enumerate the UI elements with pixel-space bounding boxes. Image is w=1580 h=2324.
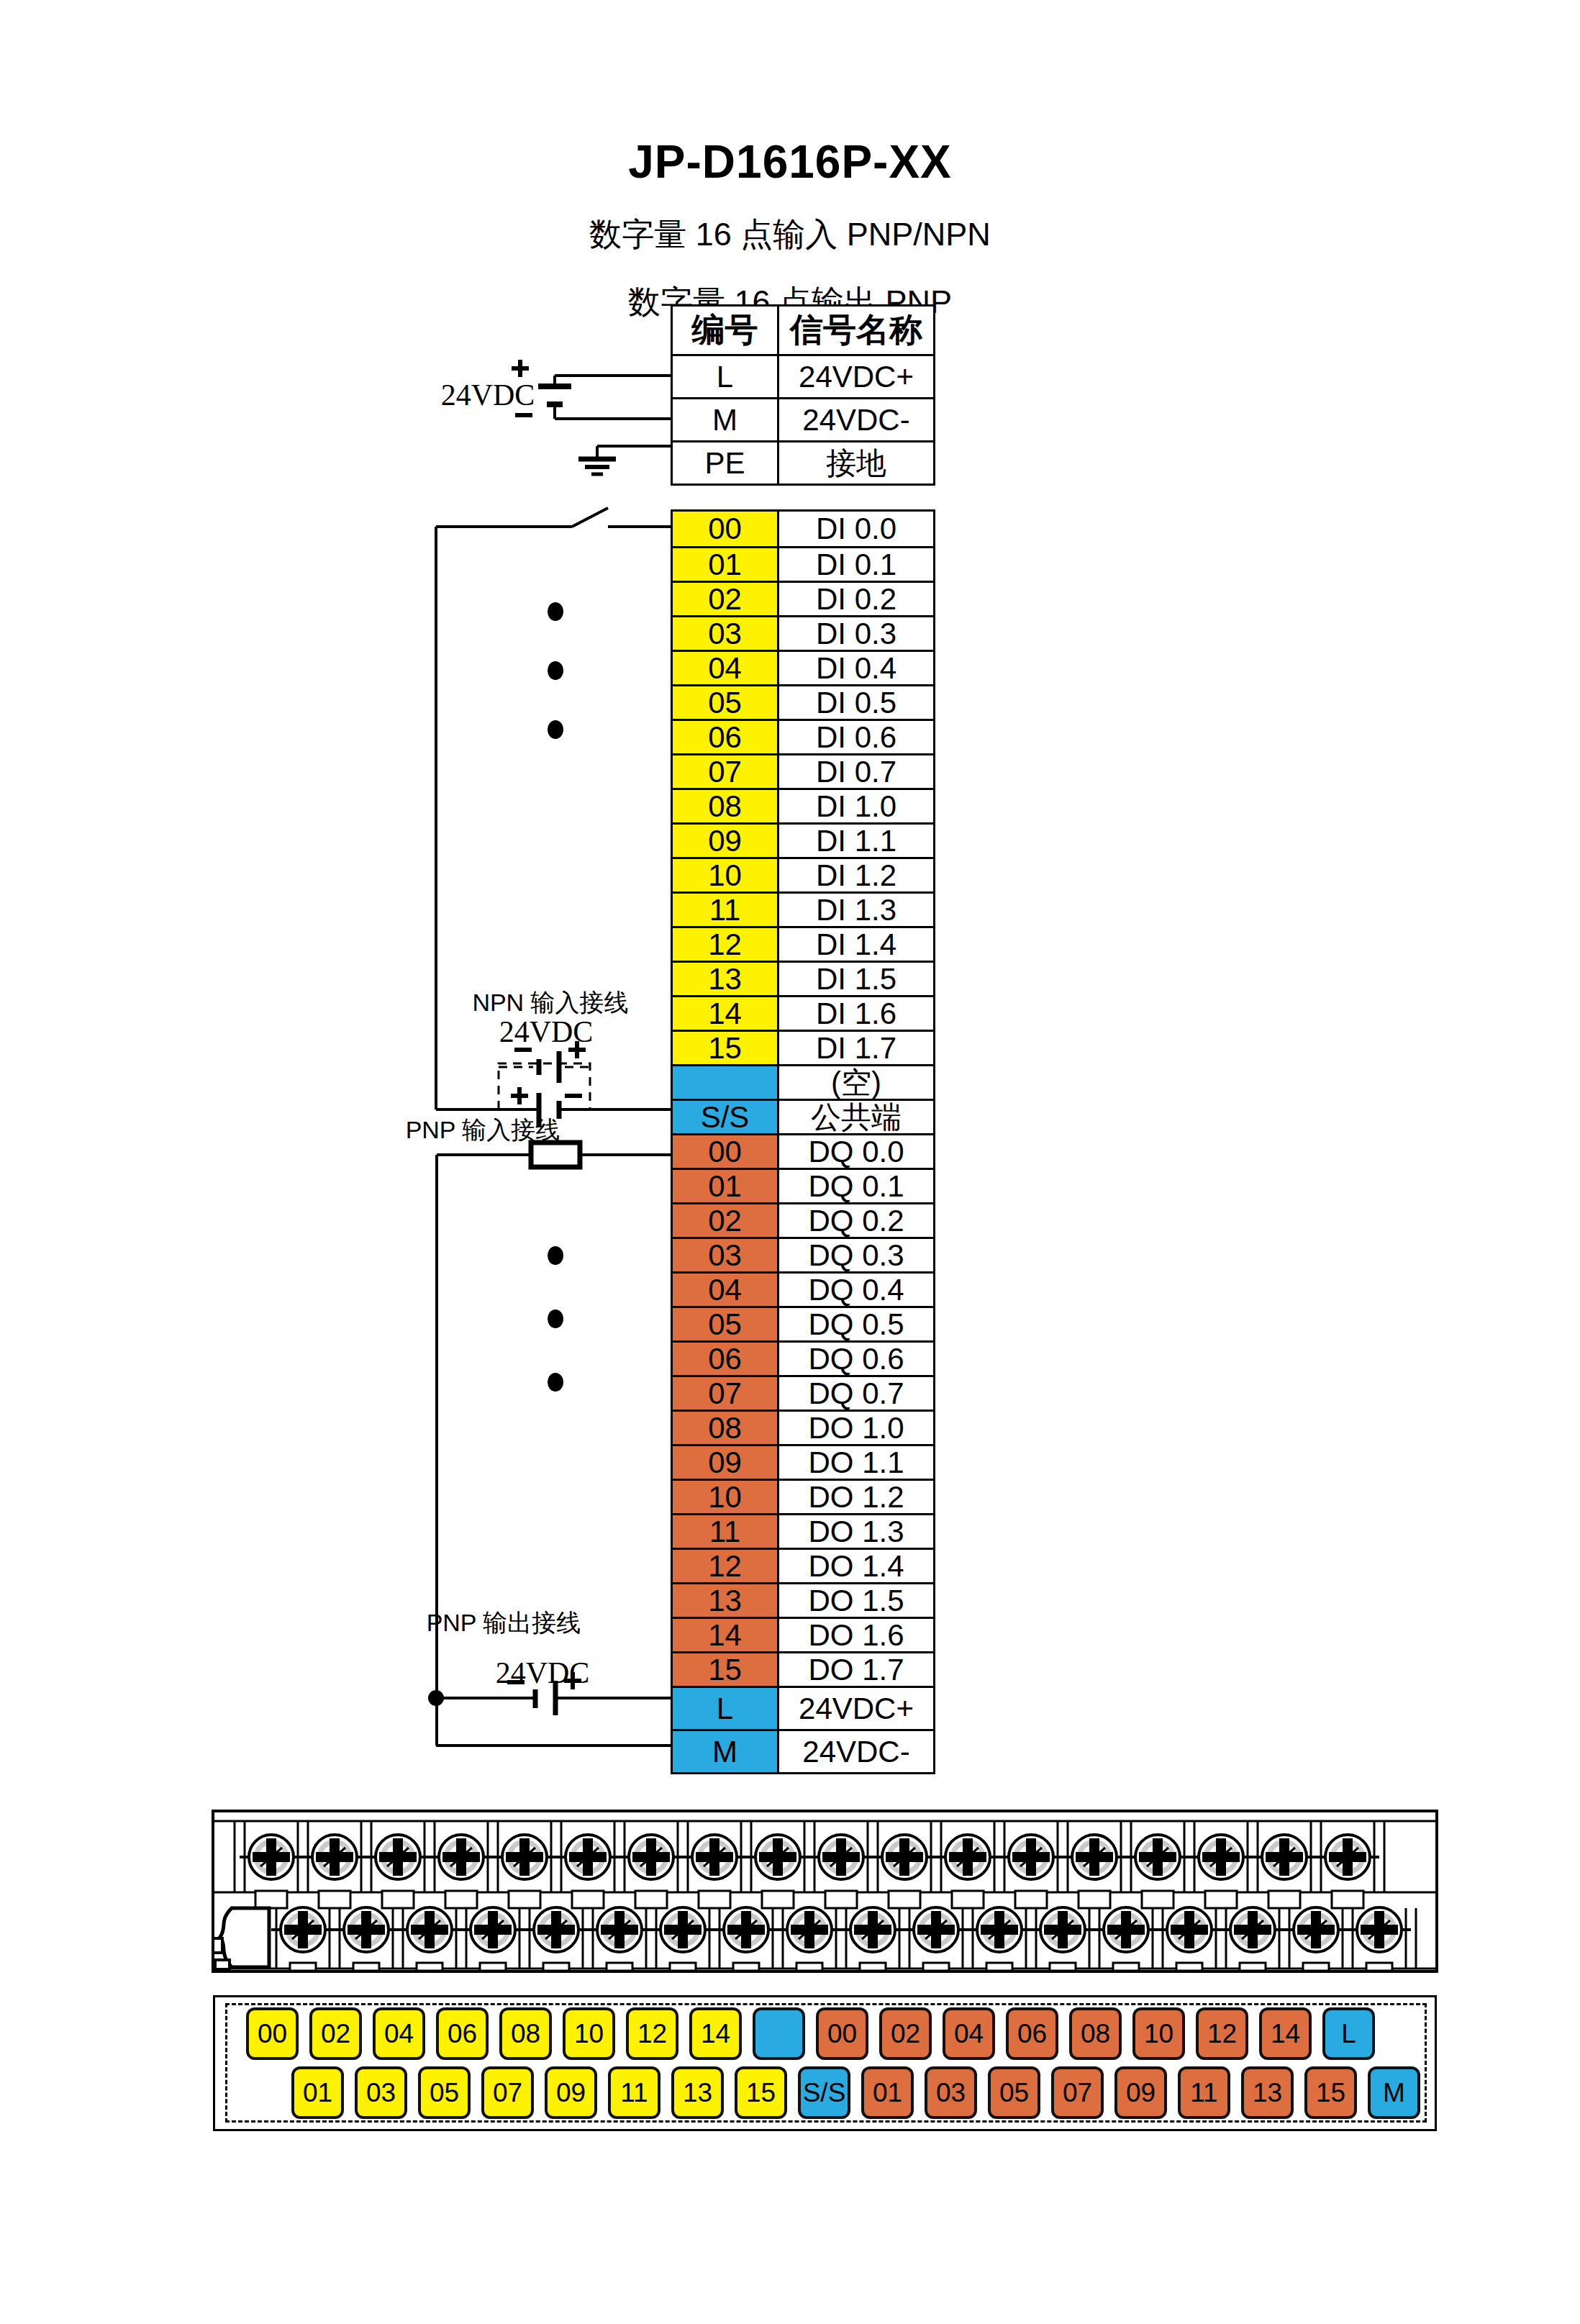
terminal-number-cell: 02 [673,1204,777,1237]
signal-name-cell: DI 1.3 [777,894,933,926]
terminal-label: 09 [1114,2066,1167,2119]
terminal-number-cell: 12 [673,928,777,961]
terminal-label: 07 [481,2066,534,2119]
terminal-label: 13 [1241,2066,1294,2119]
signal-name-cell: DQ 0.1 [777,1170,933,1202]
load-resistor [531,1143,580,1167]
switch-blade [572,508,608,527]
terminal-label: 15 [735,2066,787,2119]
terminal-number-cell: 09 [673,825,777,857]
signal-name-cell: DI 1.0 [777,790,933,822]
ellipsis-dots [548,1246,563,1392]
ellipsis-dots [548,602,563,739]
power-supply-circuit: 24VDC [441,360,671,474]
terminal-number-cell: 08 [673,790,777,822]
signal-name-cell: 接地 [777,442,933,484]
terminal-label: 12 [626,2007,678,2060]
table-row: 15DI 1.7 [673,1030,933,1064]
col-header-signal: 信号名称 [777,307,933,354]
table-row: 08DI 1.0 [673,788,933,822]
terminal-number-cell: 01 [673,548,777,581]
signal-name-cell: DI 1.6 [777,997,933,1030]
terminal-number-cell: 14 [673,1619,777,1651]
terminal-number-cell: 01 [673,1170,777,1202]
signal-name-cell: DO 1.6 [777,1619,933,1651]
table-row: 06DQ 0.6 [673,1340,933,1375]
signal-name-cell: DI 0.0 [777,512,933,546]
terminal-number-cell: 00 [673,1135,777,1168]
signal-name-cell: DO 1.1 [777,1446,933,1479]
table-row: (空) [673,1064,933,1099]
terminal-number-cell: M [673,399,777,440]
table-row: 05DQ 0.5 [673,1306,933,1340]
terminal-number-cell: 12 [673,1550,777,1582]
terminal-number-cell: 09 [673,1446,777,1479]
terminal-number-cell: 06 [673,1343,777,1375]
plus-sign [511,1087,528,1104]
table-row: 14DI 1.6 [673,995,933,1030]
signal-name-cell: DI 0.5 [777,686,933,719]
signal-name-cell: DI 0.3 [777,617,933,650]
pnp-input-label: PNP 输入接线 [406,1116,560,1143]
power-voltage-label: 24VDC [441,378,535,412]
terminal-label: 12 [1196,2007,1248,2060]
junction-dot [428,1690,444,1706]
signal-name-cell: DQ 0.6 [777,1343,933,1375]
signal-name-cell: DQ 0.2 [777,1204,933,1237]
signal-name-cell: DO 1.5 [777,1584,933,1617]
signal-name-cell: DI 0.2 [777,583,933,615]
terminal-number-cell: 11 [673,1515,777,1548]
table-row: 06DI 0.6 [673,719,933,753]
signal-name-cell: DI 1.4 [777,928,933,961]
table-row: 04DQ 0.4 [673,1271,933,1306]
terminal-number-cell: 08 [673,1412,777,1444]
signal-name-cell: DQ 0.0 [777,1135,933,1168]
terminal-label: M [1368,2066,1420,2119]
table-row: 14DO 1.6 [673,1617,933,1651]
terminal-label: 06 [436,2007,489,2060]
terminal-number-cell: 05 [673,686,777,719]
signal-name-cell: DO 1.7 [777,1653,933,1686]
terminal-number-cell: 07 [673,755,777,788]
terminal-number-cell: 04 [673,652,777,684]
table-row: 12DI 1.4 [673,926,933,961]
terminal-label: 10 [1132,2007,1185,2060]
terminal-number-cell: S/S [673,1101,777,1133]
signal-name-cell: 24VDC+ [777,356,933,397]
table-row: 01DQ 0.1 [673,1168,933,1202]
table-row: PE接地 [673,440,933,484]
signal-name-cell: DI 1.7 [777,1032,933,1064]
terminal-label: 03 [925,2066,977,2119]
terminal-label: 09 [545,2066,597,2119]
terminal-label: 02 [309,2007,362,2060]
signal-name-cell: DQ 0.7 [777,1377,933,1410]
terminal-label: 10 [563,2007,615,2060]
output-circuit: PNP 输出接线 24VDC [427,1143,671,1746]
table-header-row: 编号信号名称 [673,307,933,354]
signal-name-cell: DO 1.2 [777,1481,933,1513]
signal-name-cell: DI 0.1 [777,548,933,581]
table-row: 03DI 0.3 [673,615,933,650]
signal-name-cell: DQ 0.5 [777,1308,933,1340]
table-row: S/S公共端 [673,1099,933,1133]
terminal-number-cell: 10 [673,1481,777,1513]
terminal-label: 04 [373,2007,425,2060]
terminal-label: 03 [355,2066,407,2119]
terminal-number-cell: 13 [673,1584,777,1617]
signal-name-cell: 24VDC- [777,399,933,440]
terminal-label: 11 [1178,2066,1230,2119]
table-row: L24VDC+ [673,354,933,397]
table-row: M24VDC- [673,397,933,440]
terminal-number-cell: 03 [673,1239,777,1271]
table-row: 02DI 0.2 [673,581,933,615]
table-row: 11DI 1.3 [673,891,933,926]
terminal-label [753,2007,805,2060]
terminal-label: 00 [246,2007,299,2060]
terminal-label: 01 [291,2066,344,2119]
terminal-number-cell: 15 [673,1032,777,1064]
table-row: 12DO 1.4 [673,1548,933,1582]
terminal-number-cell: 07 [673,1377,777,1410]
signal-name-cell: (空) [777,1066,933,1099]
terminal-label: 08 [1069,2007,1122,2060]
terminal-label: 02 [879,2007,932,2060]
signal-name-cell: 公共端 [777,1101,933,1133]
terminal-label: 05 [418,2066,471,2119]
io-terminal-table: 00DI 0.001DI 0.102DI 0.203DI 0.304DI 0.4… [671,509,935,1774]
table-row: 11DO 1.3 [673,1513,933,1548]
table-row: L24VDC+ [673,1686,933,1729]
signal-name-cell: DQ 0.3 [777,1239,933,1271]
pnp-output-label: PNP 输出接线 [427,1609,581,1636]
signal-name-cell: DI 0.7 [777,755,933,788]
signal-name-cell: DI 0.6 [777,721,933,753]
terminal-number-cell: 06 [673,721,777,753]
terminal-label: 00 [816,2007,868,2060]
table-row: 04DI 0.4 [673,650,933,684]
terminal-number-cell: 02 [673,583,777,615]
power-terminal-table: 编号信号名称L24VDC+M24VDC-PE接地 [671,304,935,486]
npn-battery-dashed [499,1063,590,1109]
ground-symbol [578,446,671,474]
terminal-label: 07 [1051,2066,1104,2119]
table-row: 02DQ 0.2 [673,1202,933,1237]
signal-name-cell: DQ 0.4 [777,1274,933,1306]
table-row: 00DI 0.0 [673,512,933,546]
terminal-label: 01 [861,2066,914,2119]
terminal-label: 11 [608,2066,660,2119]
terminal-label: 14 [1259,2007,1312,2060]
table-row: 13DO 1.5 [673,1582,933,1617]
table-row: 07DQ 0.7 [673,1375,933,1410]
output-voltage-label: 24VDC [496,1656,590,1689]
datasheet-page: JP-D1616P-XX 数字量 16 点输入 PNP/NPN 数字量 16 点… [0,0,1580,2324]
terminal-number-cell: L [673,1688,777,1729]
terminal-label: L [1322,2007,1375,2060]
terminal-label: 04 [943,2007,995,2060]
terminal-number-cell: 15 [673,1653,777,1686]
table-row: 10DO 1.2 [673,1479,933,1513]
table-row: 07DI 0.7 [673,753,933,788]
terminal-label: 14 [689,2007,742,2060]
signal-name-cell: DI 1.5 [777,963,933,995]
terminal-block [213,1811,1437,1971]
table-row: 10DI 1.2 [673,857,933,891]
terminal-label: 15 [1304,2066,1357,2119]
table-row: 01DI 0.1 [673,546,933,581]
table-row: 09DO 1.1 [673,1444,933,1479]
table-row: M24VDC- [673,1729,933,1772]
terminal-number-cell: 14 [673,997,777,1030]
col-header-number: 编号 [673,307,777,354]
table-row: 05DI 0.5 [673,684,933,719]
table-row: 08DO 1.0 [673,1410,933,1444]
table-row: 15DO 1.7 [673,1651,933,1686]
table-row: 09DI 1.1 [673,822,933,857]
terminal-label: 08 [499,2007,552,2060]
signal-name-cell: DI 1.1 [777,825,933,857]
terminal-label: 06 [1006,2007,1058,2060]
terminal-number-cell: M [673,1731,777,1772]
terminal-label: S/S [798,2066,850,2119]
terminal-number-cell: 10 [673,859,777,891]
terminal-number-cell: 03 [673,617,777,650]
terminal-number-cell: 00 [673,512,777,546]
table-row: 03DQ 0.3 [673,1237,933,1271]
signal-name-cell: 24VDC- [777,1731,933,1772]
signal-name-cell: DO 1.4 [777,1550,933,1582]
signal-name-cell: DO 1.0 [777,1412,933,1444]
signal-name-cell: DO 1.3 [777,1515,933,1548]
terminal-number-cell [673,1066,777,1099]
signal-name-cell: 24VDC+ [777,1688,933,1729]
signal-name-cell: DI 1.2 [777,859,933,891]
terminal-number-cell: 11 [673,894,777,926]
terminal-number-cell: L [673,356,777,397]
terminal-latch [220,1908,269,1967]
table-row: 13DI 1.5 [673,961,933,995]
terminal-number-cell: 05 [673,1308,777,1340]
signal-name-cell: DI 0.4 [777,652,933,684]
terminal-number-cell: 04 [673,1274,777,1306]
npn-section-label: NPN 输入接线 [472,989,628,1016]
terminal-number-cell: 13 [673,963,777,995]
input-circuit: NPN 输入接线 24VDC PNP 输入接线 [406,508,671,1143]
table-row: 00DQ 0.0 [673,1133,933,1168]
terminal-label: 13 [671,2066,724,2119]
terminal-number-cell: PE [673,442,777,484]
plus-sign [512,360,529,377]
terminal-label: 05 [988,2066,1040,2119]
